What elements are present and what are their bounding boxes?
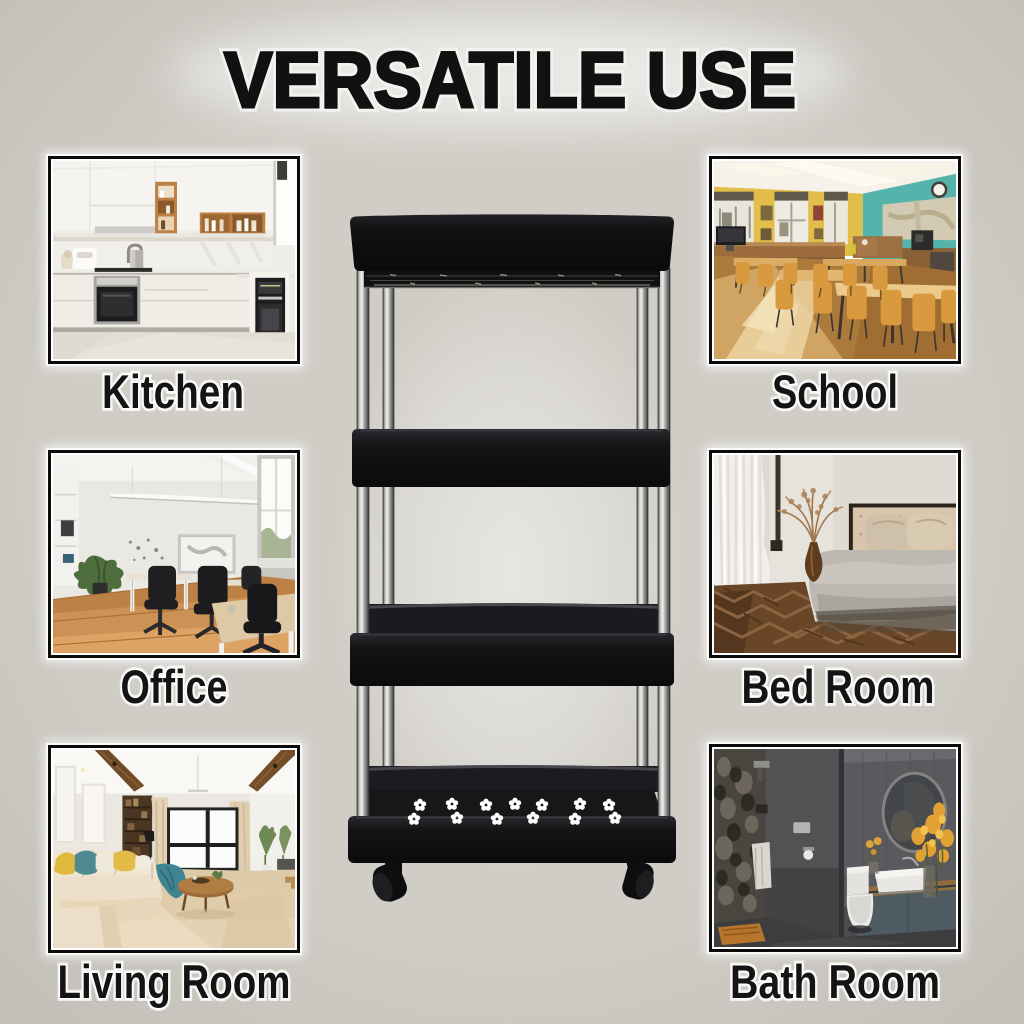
- svg-text:Kitchen: Kitchen: [102, 368, 244, 418]
- svg-text:Bed Room: Bed Room: [742, 663, 935, 713]
- svg-text:Office: Office: [121, 663, 228, 713]
- svg-text:School: School: [772, 368, 898, 418]
- svg-text:Bath Room: Bath Room: [730, 957, 940, 1008]
- svg-text:VERSATILE USE: VERSATILE USE: [224, 35, 796, 124]
- svg-text:Living Room: Living Room: [58, 957, 291, 1008]
